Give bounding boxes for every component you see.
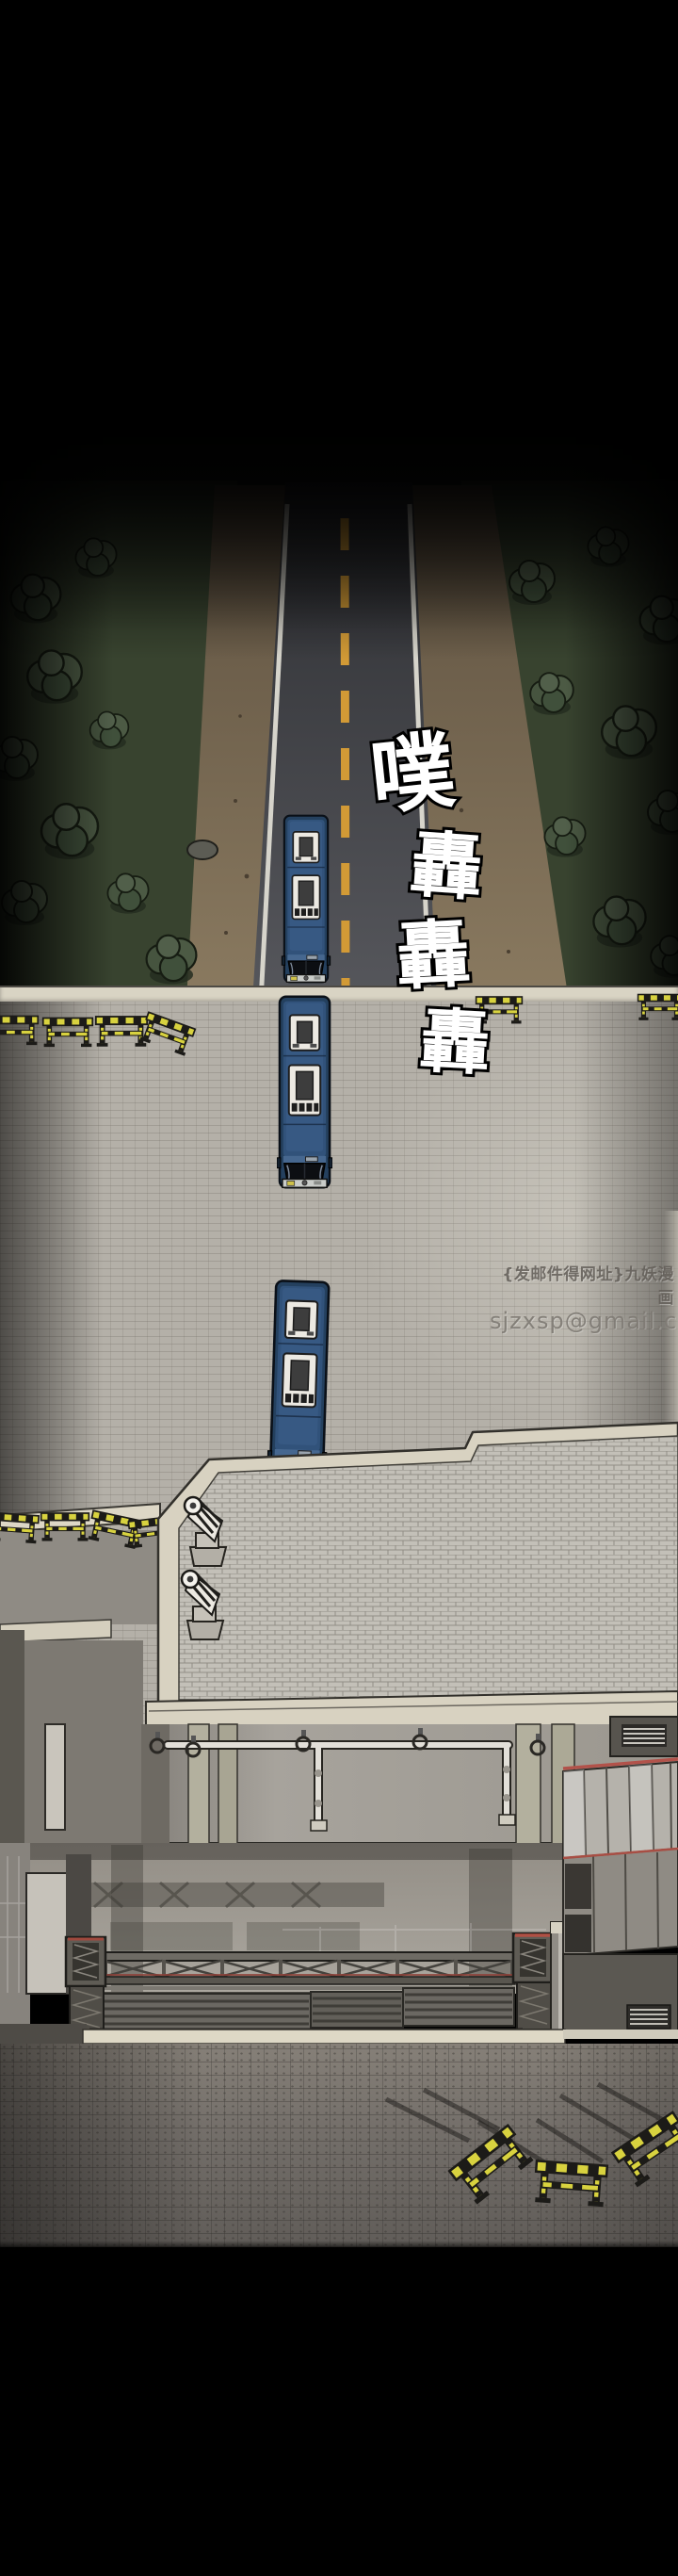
gatehouse-complex — [0, 1413, 678, 2045]
bus-position-1 — [279, 814, 333, 984]
watermark-email: sjzxsp@gmail.com — [490, 1308, 674, 1334]
left-deep-shadow — [0, 1630, 24, 1844]
watermark-site-line: {发邮件得网址}九妖漫画 — [490, 1261, 674, 1308]
apron-barrier-group — [358, 2082, 678, 2247]
watermark: {发邮件得网址}九妖漫画 sjzxsp@gmail.com — [490, 1261, 674, 1334]
plaza-shadow-right — [574, 1002, 678, 1426]
wall-vent — [610, 1717, 678, 1756]
sfx-char-2: 轟 — [408, 828, 484, 905]
gate-truss-top-chord — [99, 1952, 515, 1961]
barrier-2 — [534, 2160, 607, 2207]
rock — [187, 840, 218, 859]
top-darkness — [0, 0, 678, 660]
sfx-char-4: 轟 — [418, 1006, 492, 1080]
bus-position-2 — [277, 993, 332, 1191]
gate-truss-bottom-chord — [99, 1977, 515, 1984]
threshold-strip-right — [563, 2030, 678, 2039]
barrier-3 — [613, 2112, 678, 2188]
left-gate-pillar — [26, 1873, 68, 1994]
barrier-row-right — [471, 987, 678, 1030]
sfx-char-1: 噗 — [367, 729, 459, 821]
gate-post-left — [66, 1937, 105, 2031]
barrier-row-left — [0, 1003, 202, 1068]
left-pole — [45, 1724, 65, 1830]
bottom-darkness — [0, 2241, 678, 2576]
gate-post-right — [513, 1933, 553, 2030]
sfx-char-3: 轟 — [395, 918, 472, 995]
gate-threshold-strip — [83, 2030, 565, 2044]
roof-brick-pattern — [179, 1436, 678, 1700]
comic-page: {发邮件得网址}九妖漫画 sjzxsp@gmail.com — [0, 0, 678, 2576]
gate-panels — [102, 1988, 514, 2030]
corrugated-shed — [563, 1759, 678, 2031]
apron-left-dark — [0, 2024, 87, 2045]
